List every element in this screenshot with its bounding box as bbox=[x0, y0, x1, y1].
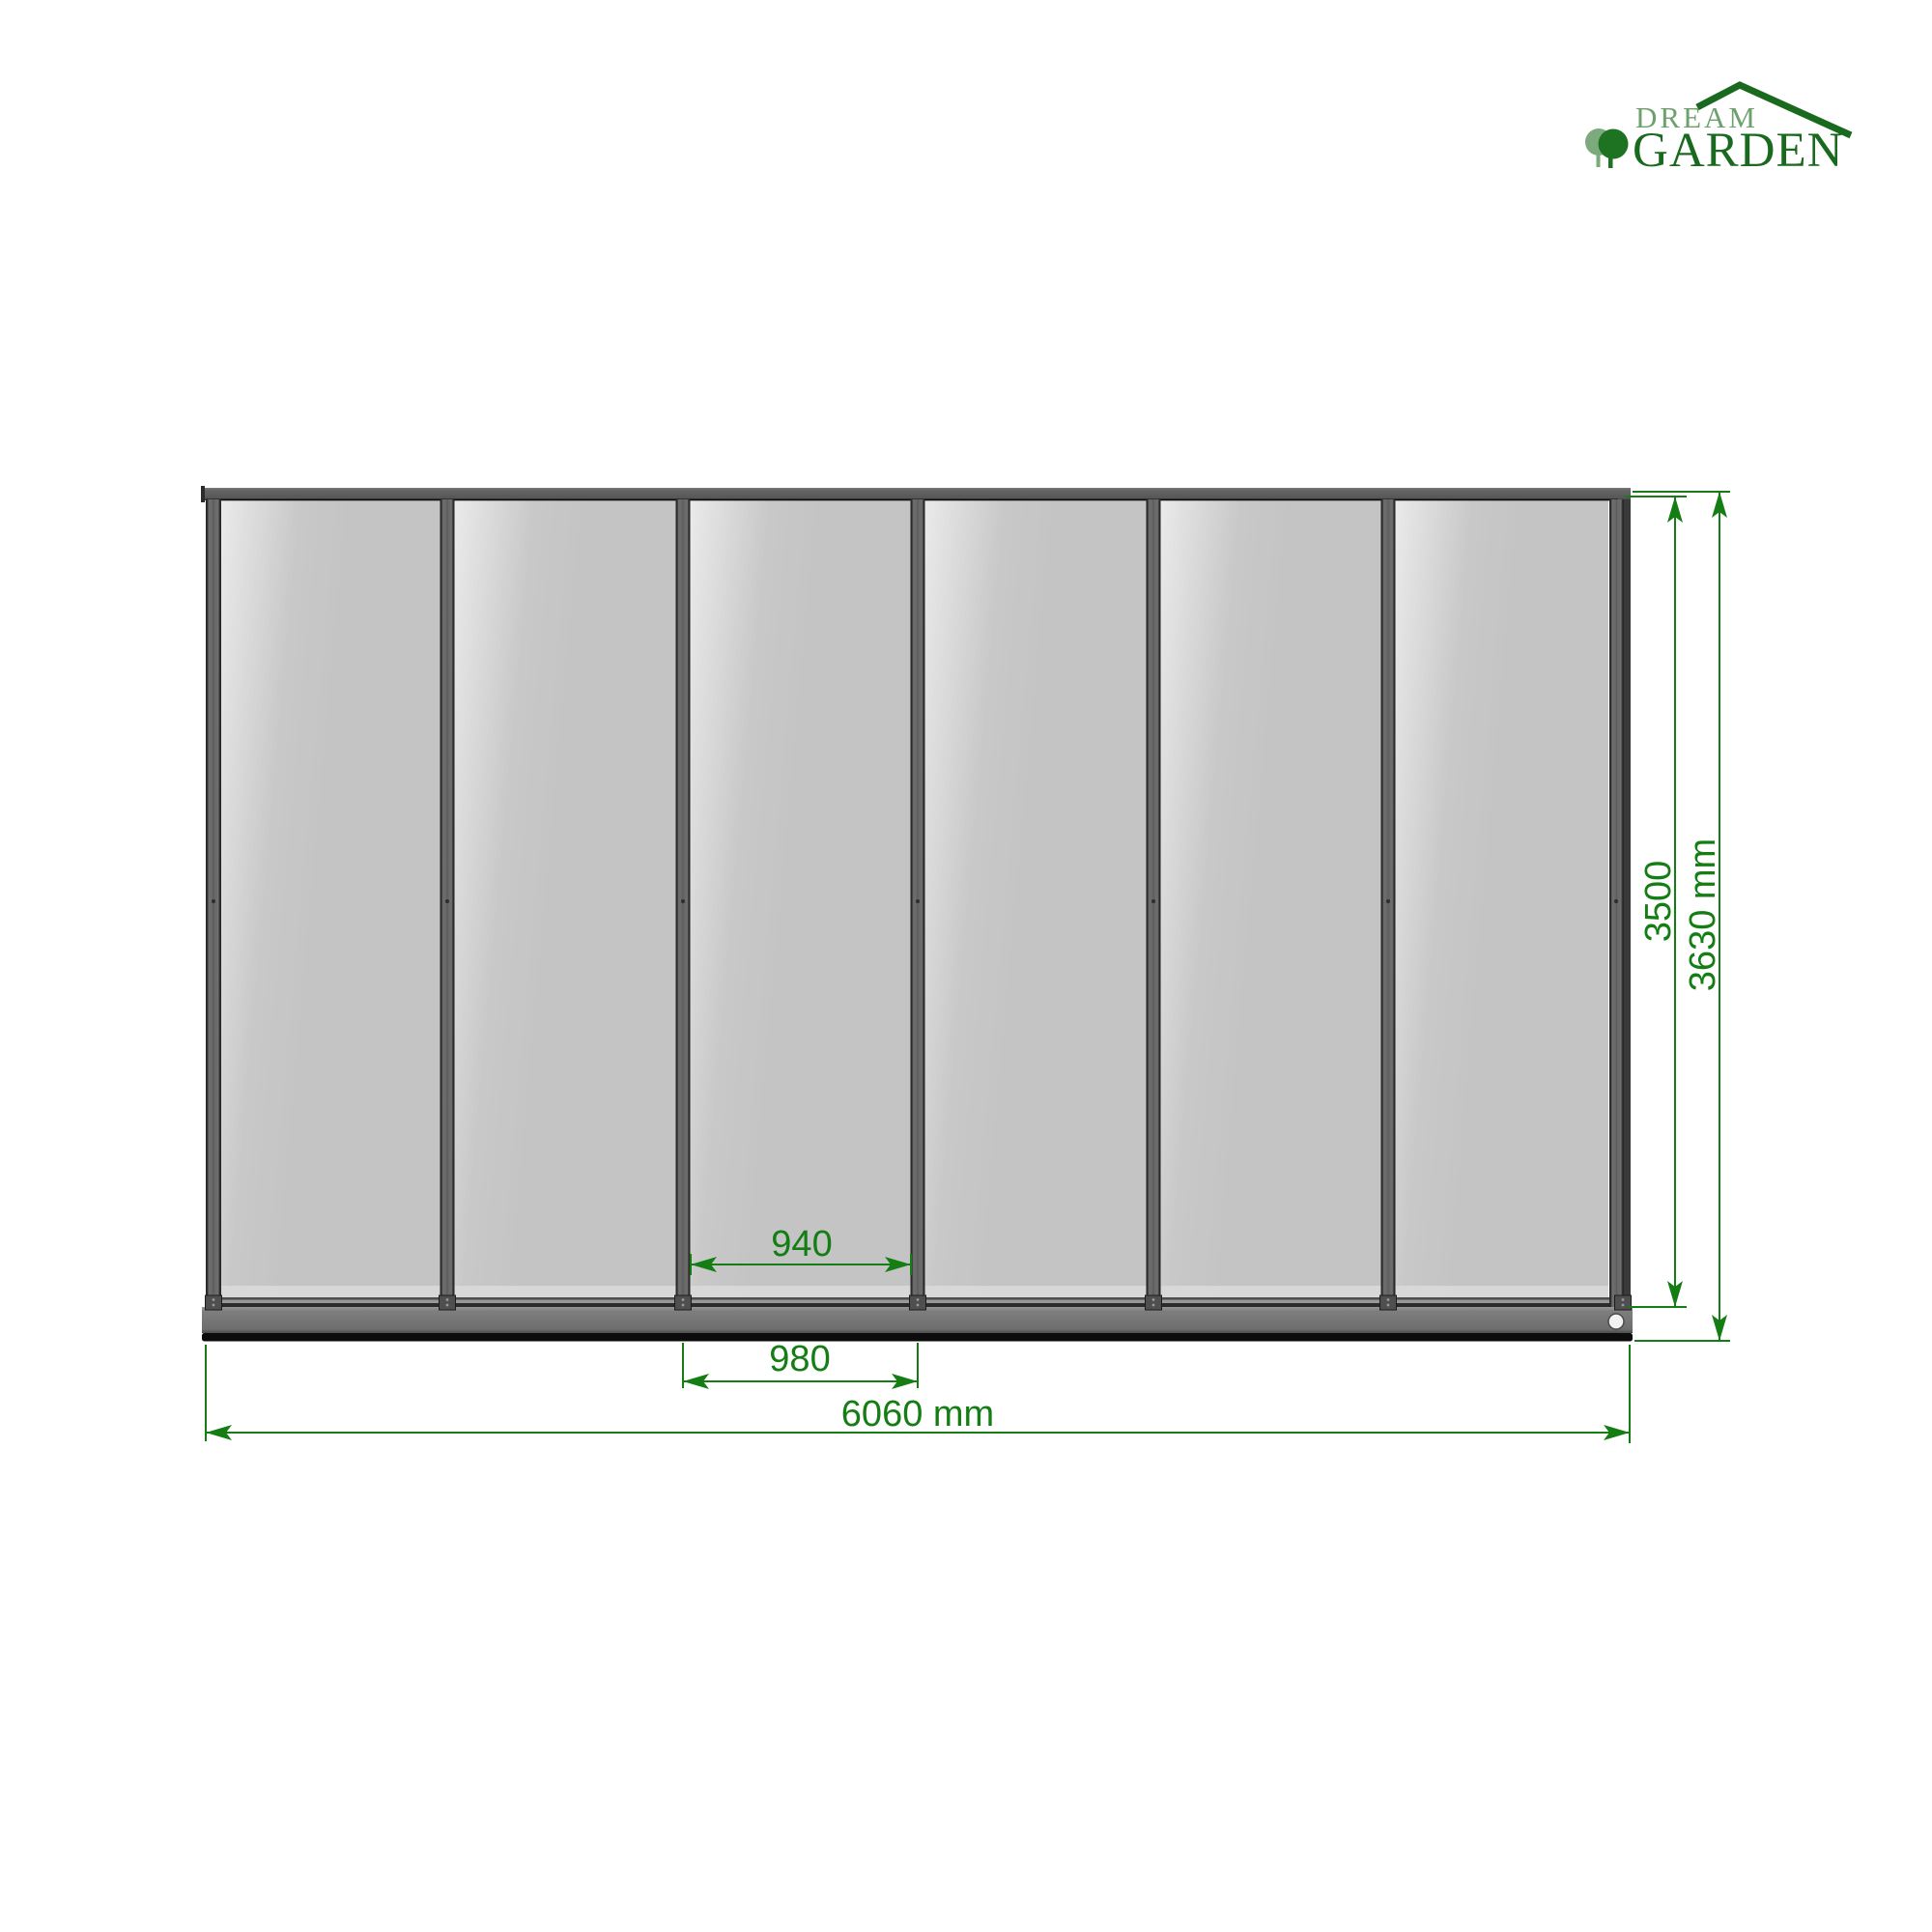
frame-post-right bbox=[1609, 499, 1624, 1307]
glass-panel bbox=[1161, 500, 1381, 1297]
glass-panel bbox=[925, 500, 1147, 1297]
mullion-post bbox=[1381, 499, 1396, 1297]
drawing-canvas: 940 980 6060 mm 3500 bbox=[0, 0, 1932, 1932]
tree-icon bbox=[1599, 129, 1629, 159]
dimension-label-overall-height: 3630 mm bbox=[1683, 838, 1723, 991]
mullion-post bbox=[440, 499, 455, 1297]
brand-logo: DREAM GARDEN bbox=[1585, 85, 1851, 178]
glass-panel bbox=[691, 500, 911, 1297]
dimension-post-spacing: 980 bbox=[683, 1339, 918, 1389]
top-rail-left-cap bbox=[201, 486, 205, 502]
top-rail bbox=[202, 488, 1631, 500]
post-base-bracket bbox=[675, 1295, 692, 1310]
mullion-post bbox=[1147, 499, 1161, 1297]
dimension-label-overall-width: 6060 mm bbox=[841, 1394, 994, 1435]
mullion-post bbox=[676, 499, 691, 1297]
post-base-bracket bbox=[1615, 1295, 1632, 1310]
frame-post-right-cap bbox=[1624, 499, 1631, 1307]
dimension-label-post-spacing: 980 bbox=[769, 1339, 830, 1379]
brand-name-garden: GARDEN bbox=[1633, 124, 1844, 178]
wall-structure bbox=[201, 486, 1633, 1342]
base-beam bbox=[202, 1307, 1633, 1333]
base-strip bbox=[202, 1333, 1633, 1342]
post-base-bracket bbox=[440, 1295, 456, 1310]
post-base-bracket bbox=[1380, 1295, 1397, 1310]
mullion-post bbox=[911, 499, 925, 1297]
glass-panel bbox=[455, 500, 676, 1297]
post-base-bracket bbox=[910, 1295, 926, 1310]
dimension-label-glass-width: 940 bbox=[771, 1224, 832, 1264]
glass-panel bbox=[1396, 500, 1609, 1297]
drain-hole bbox=[1608, 1314, 1624, 1329]
post-base-bracket bbox=[206, 1295, 222, 1310]
dimension-label-frame-height: 3500 bbox=[1638, 861, 1679, 943]
post-base-bracket bbox=[1146, 1295, 1162, 1310]
glass-panel bbox=[221, 500, 440, 1297]
dimension-frame-height: 3500 bbox=[1625, 497, 1687, 1307]
elevation-drawing: 940 980 6060 mm 3500 bbox=[0, 0, 1932, 1932]
